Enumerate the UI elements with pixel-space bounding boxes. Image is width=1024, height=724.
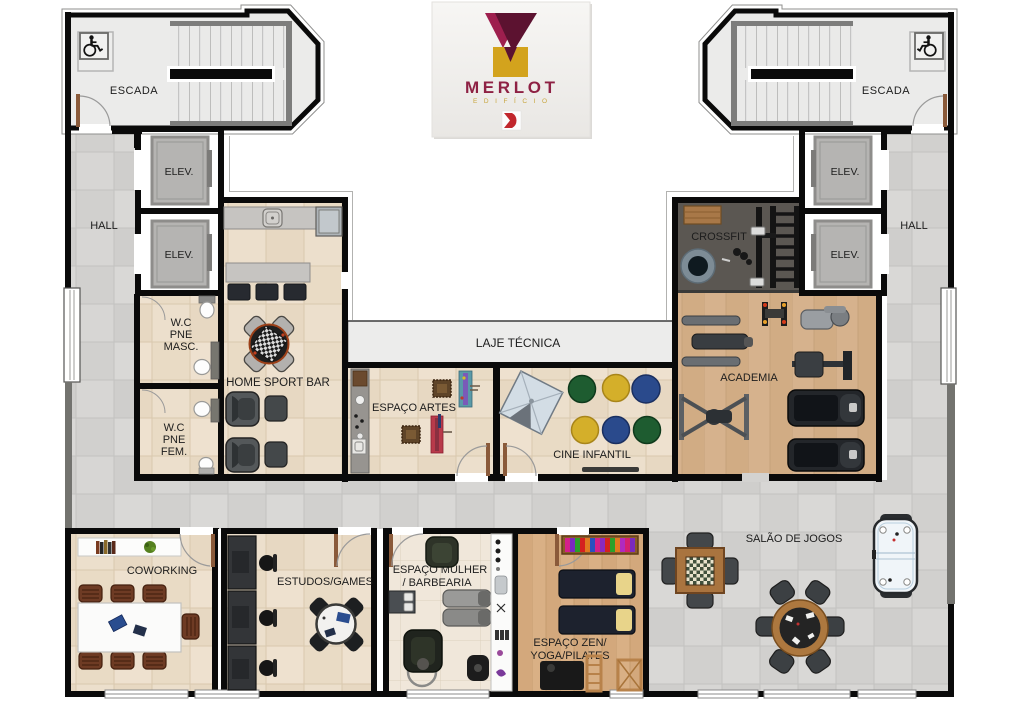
- svg-text:CROSSFIT: CROSSFIT: [691, 231, 747, 243]
- svg-text:HALL: HALL: [90, 220, 118, 232]
- svg-text:ESCADA: ESCADA: [862, 85, 910, 97]
- svg-text:ELEV.: ELEV.: [831, 166, 860, 178]
- svg-text:LAJE TÉCNICA: LAJE TÉCNICA: [476, 335, 560, 350]
- svg-text:HALL: HALL: [900, 220, 928, 232]
- svg-text:ESTUDOS/GAMES: ESTUDOS/GAMES: [277, 576, 373, 588]
- svg-text:/ BARBEARIA: / BARBEARIA: [402, 577, 472, 589]
- svg-text:ESCADA: ESCADA: [110, 85, 158, 97]
- svg-text:COWORKING: COWORKING: [127, 565, 197, 577]
- svg-text:HOME SPORT BAR: HOME SPORT BAR: [226, 377, 330, 389]
- svg-text:FEM.: FEM.: [161, 446, 187, 458]
- svg-text:PNE: PNE: [163, 434, 186, 446]
- svg-text:ELEV.: ELEV.: [165, 166, 194, 178]
- svg-text:ESPAÇO ARTES: ESPAÇO ARTES: [372, 402, 456, 414]
- svg-text:ESPAÇO ZEN/: ESPAÇO ZEN/: [533, 637, 607, 649]
- svg-text:CINE INFANTIL: CINE INFANTIL: [553, 449, 631, 461]
- svg-text:ELEV.: ELEV.: [831, 249, 860, 261]
- svg-text:ELEV.: ELEV.: [165, 249, 194, 261]
- svg-text:PNE: PNE: [170, 329, 193, 341]
- svg-text:ACADEMIA: ACADEMIA: [720, 372, 778, 384]
- svg-text:W.C: W.C: [164, 422, 185, 434]
- svg-text:W.C: W.C: [171, 317, 192, 329]
- svg-text:MASC.: MASC.: [164, 341, 199, 353]
- svg-text:SALÃO DE JOGOS: SALÃO DE JOGOS: [746, 532, 843, 545]
